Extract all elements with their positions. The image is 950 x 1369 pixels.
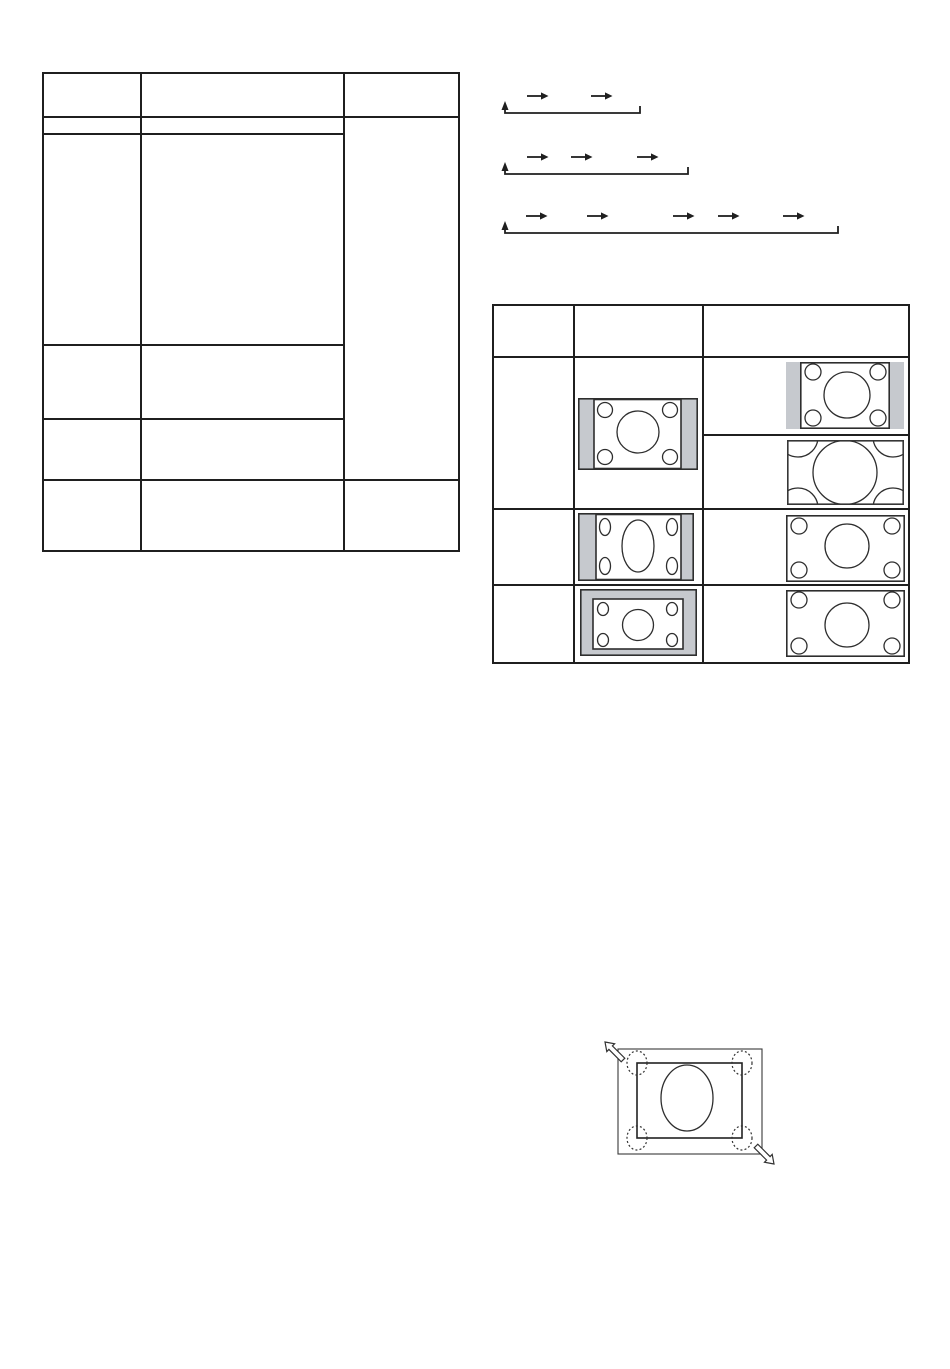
side-bar-left [786,362,800,429]
picture-area [596,515,681,580]
screen-4-3-pillarbox-illustration [578,398,698,470]
screen-zoom-cropped-illustration [787,440,904,505]
table-border [573,304,575,664]
side-bar-right [890,362,904,429]
screen-full-illustration-2 [786,590,905,657]
table-border [492,508,910,510]
table-border [702,434,910,436]
table-border [908,304,910,664]
table-border [702,304,704,664]
table-border [492,584,910,586]
table-border [492,304,910,306]
picture-area [788,441,903,504]
table-border [492,304,494,664]
inner-picture-rect [637,1063,742,1138]
screen-4-3-pillarbox-large-illustration [786,362,904,429]
screen-stretched-pillarbox-illustration [578,513,694,581]
dotted-corner-circles [627,1051,752,1150]
screen-letterbox-framed-illustration [580,589,697,656]
expand-arrow-up-left-icon [605,1042,625,1062]
screen-expand-diagram [595,1035,785,1170]
table-border [492,356,910,358]
right-table [0,0,950,1369]
picture-area [787,516,904,581]
center-ellipse [661,1065,713,1131]
screen-full-illustration-1 [786,515,905,582]
page [0,0,950,1369]
picture-area [594,400,681,469]
table-border [492,662,910,664]
picture-area [593,599,683,649]
